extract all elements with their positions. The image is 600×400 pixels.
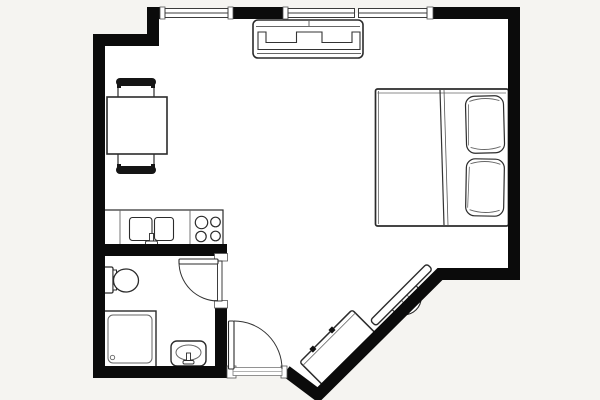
shower <box>104 311 156 367</box>
window-2 <box>288 9 355 18</box>
toilet <box>102 267 139 293</box>
pillow-bottom <box>466 159 505 217</box>
dining-table <box>107 97 167 154</box>
windows <box>165 9 427 18</box>
sofa <box>253 20 363 58</box>
window-jamb <box>283 7 288 19</box>
kitchen-counter <box>104 210 223 246</box>
floor-plan <box>0 0 600 400</box>
window-1 <box>165 9 228 18</box>
window-jamb <box>427 7 433 19</box>
chair-post <box>151 164 155 168</box>
pillow-top <box>465 96 504 154</box>
window-jamb <box>160 7 165 19</box>
dining-chair-bottom <box>116 152 156 174</box>
bathroom-door-leaf <box>179 259 218 264</box>
chair-back <box>116 78 156 86</box>
washbasin <box>171 341 206 366</box>
bathroom-door-jamb <box>215 301 228 309</box>
double-bed <box>376 89 509 226</box>
window-3 <box>359 9 428 18</box>
entry-threshold <box>233 368 282 376</box>
chair-post <box>117 164 121 168</box>
floor-plan-canvas <box>0 0 600 400</box>
window-jamb <box>228 7 233 19</box>
entry-door-leaf <box>229 321 235 369</box>
chair-post <box>117 84 121 88</box>
chair-post <box>151 84 155 88</box>
chair-back <box>116 166 156 174</box>
bathroom-door-closed-panel <box>218 261 223 301</box>
